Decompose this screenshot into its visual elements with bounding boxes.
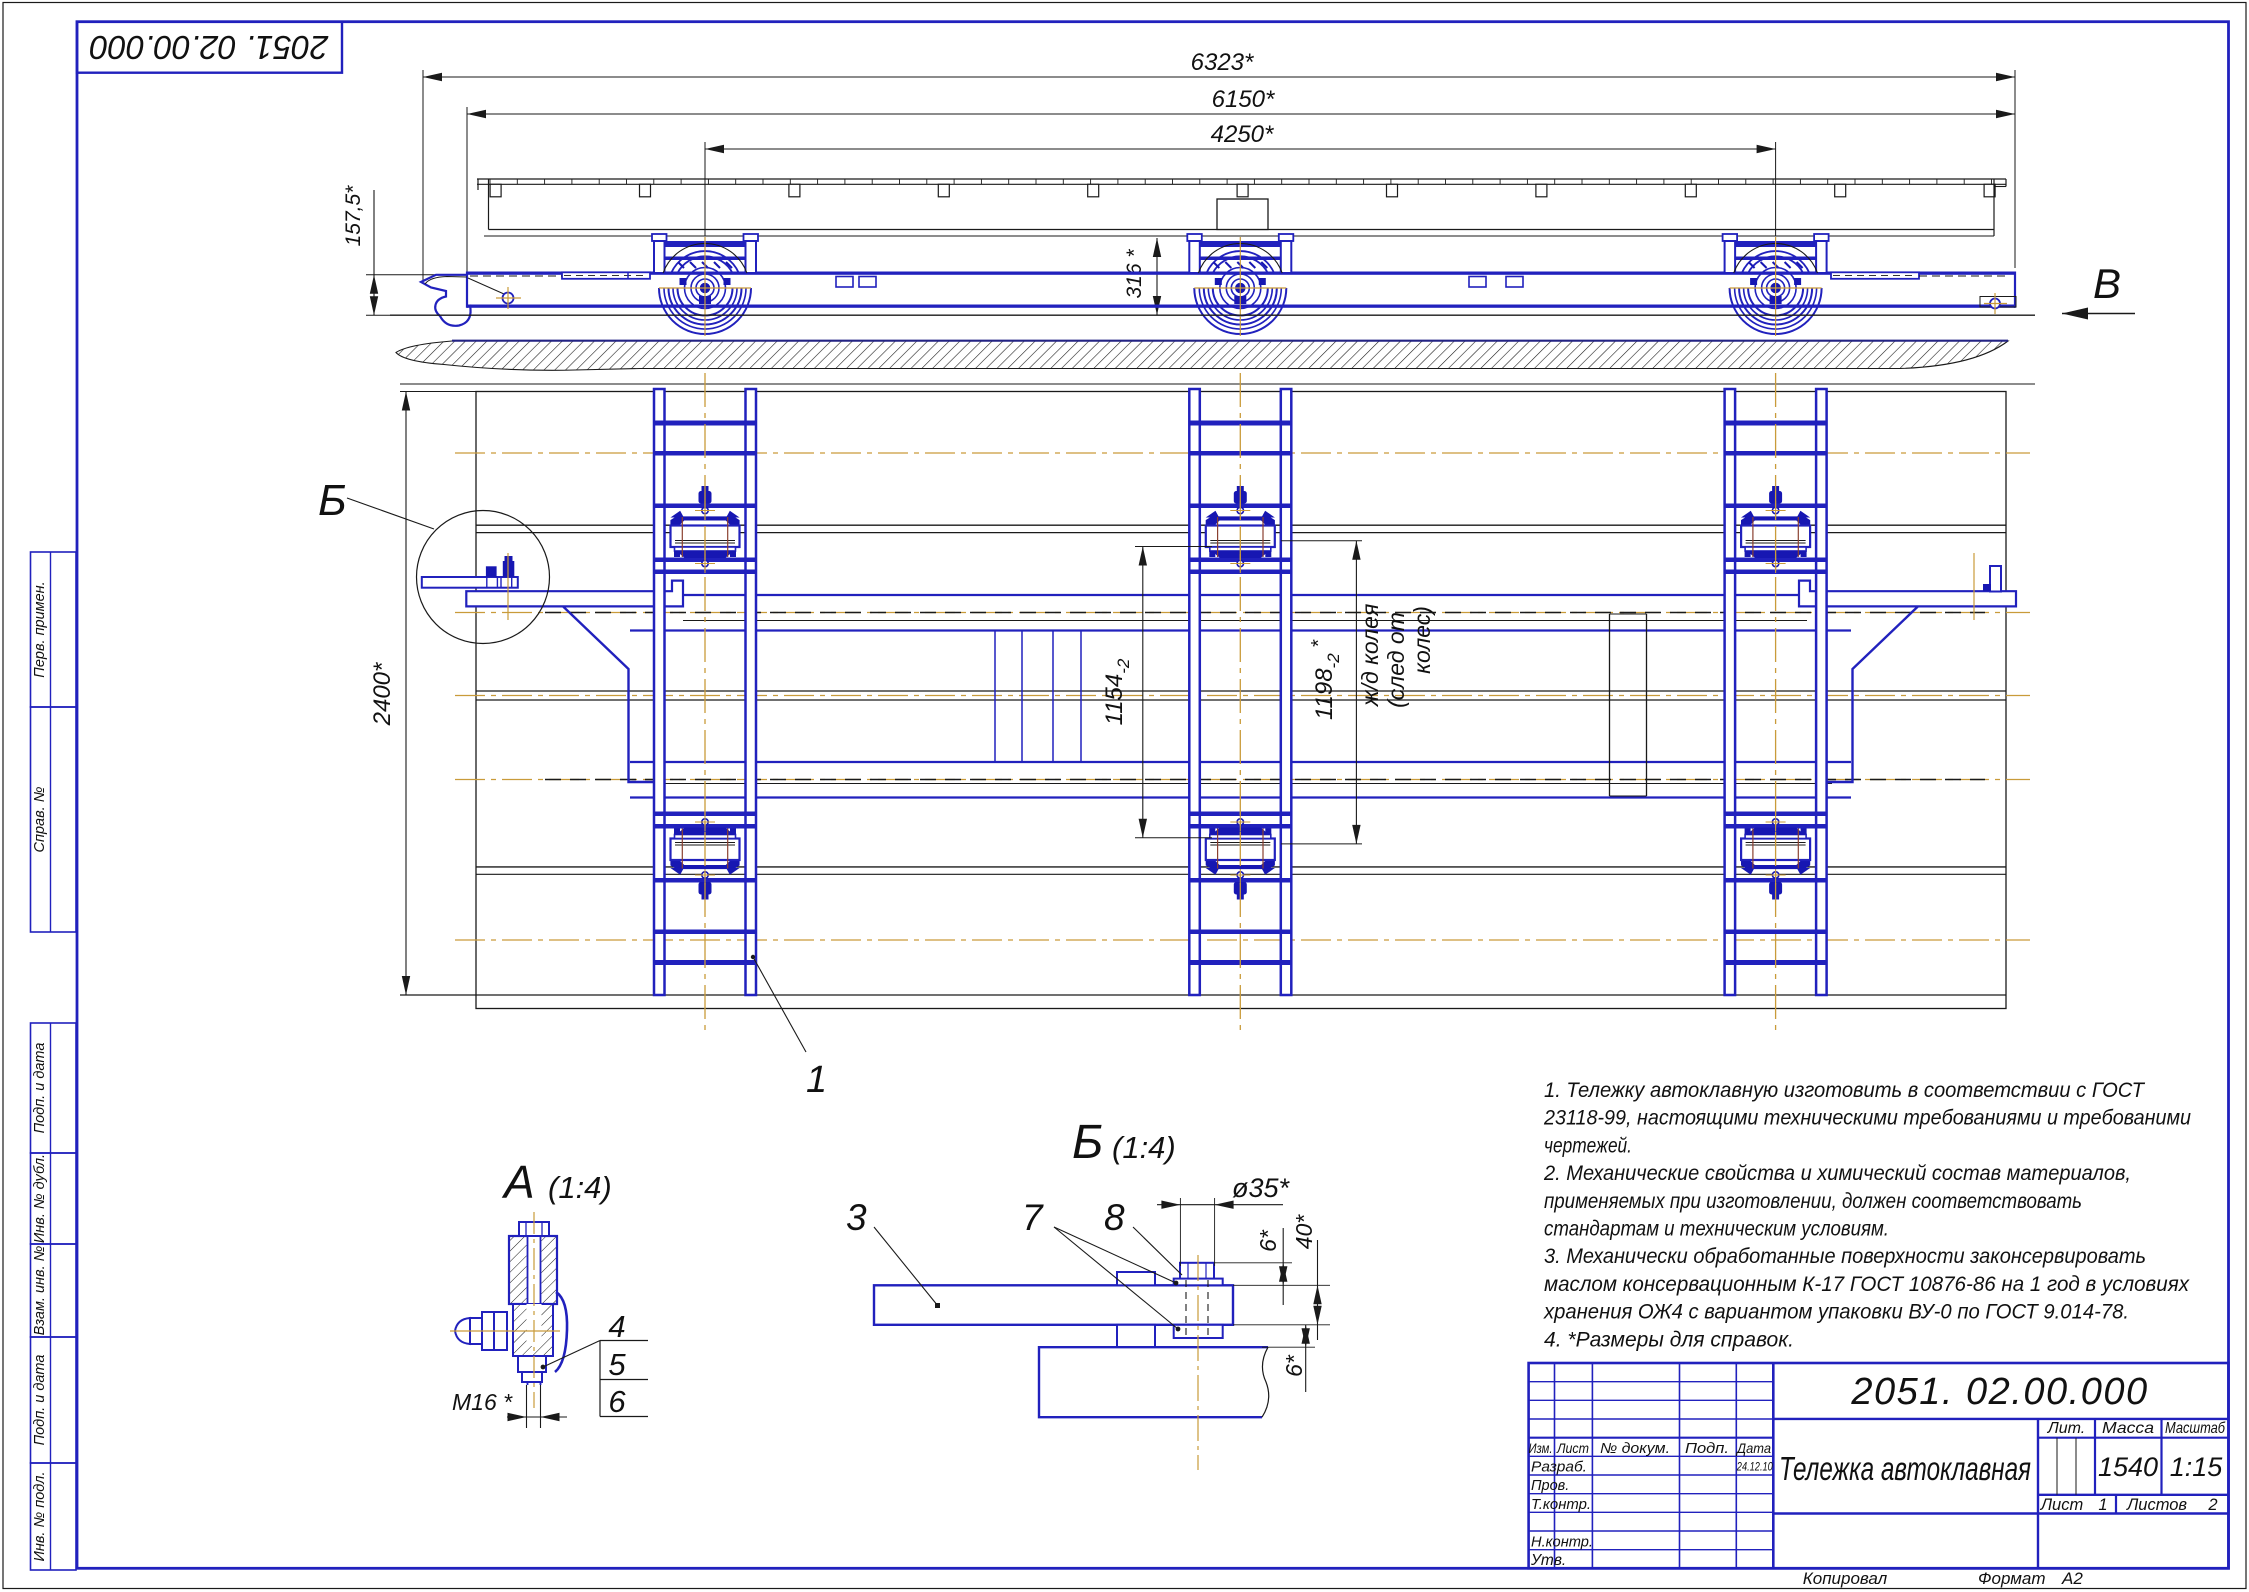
svg-text:Справ. №: Справ. № [32,786,48,852]
svg-text:Б: Б [318,476,347,525]
svg-text:4: 4 [608,1309,625,1344]
svg-text:ж/д колея: ж/д колея [1357,604,1383,708]
svg-text:6150*: 6150* [1212,86,1275,113]
svg-text:Тележка автоклавная: Тележка автоклавная [1779,1450,2031,1487]
svg-text:Лит.: Лит. [2047,1420,2085,1437]
svg-text:2. Механические свойства и хи: 2. Механические свойства и химический со… [1543,1161,2131,1185]
svg-text:(1:4): (1:4) [1112,1130,1176,1165]
svg-text:7: 7 [1022,1197,1044,1238]
svg-text:Инв. № дубл.: Инв. № дубл. [32,1154,48,1243]
svg-text:колес): колес) [1409,606,1435,674]
svg-text:23118-99, настоящими техническ: 23118-99, настоящими техническими требов… [1543,1106,2191,1130]
svg-text:Дата: Дата [1735,1440,1771,1456]
svg-text:24.12.10: 24.12.10 [1736,1462,1773,1474]
svg-text:2400*: 2400* [369,662,396,726]
svg-text:6: 6 [608,1384,626,1419]
svg-text:Подп. и дата: Подп. и дата [32,1355,48,1446]
svg-text:3: 3 [846,1197,867,1238]
svg-text:2: 2 [2207,1496,2217,1514]
svg-text:Взам. инв. №: Взам. инв. № [32,1245,48,1335]
svg-text:4. *Размеры для справок.: 4. *Размеры для справок. [1544,1327,1794,1351]
svg-text:Лист: Лист [1556,1441,1589,1456]
svg-text:1:15: 1:15 [2170,1452,2224,1482]
svg-text:Масса: Масса [2102,1420,2154,1437]
svg-text:3. Механически обработанные п: 3. Механически обработанные поверхности … [1544,1244,2146,1268]
svg-text:Масштаб: Масштаб [2165,1420,2226,1437]
svg-text:(след от: (след от [1383,612,1409,708]
svg-text:применяемых при изготовлении,: применяемых при изготовлении, должен соо… [1544,1189,2082,1213]
svg-text:1: 1 [2098,1496,2107,1514]
svg-text:Формат: Формат [1978,1569,2046,1588]
svg-text:стандартам и техническим услов: стандартам и техническим условиям. [1544,1217,1889,1241]
svg-text:Изм.: Изм. [1529,1441,1553,1456]
svg-text:1540: 1540 [2098,1452,2158,1482]
svg-text:6*: 6* [1255,1229,1281,1252]
svg-text:М16 *: М16 * [452,1389,513,1415]
svg-text:А2: А2 [2061,1569,2083,1588]
svg-text:1: 1 [806,1059,827,1101]
svg-text:Подп.: Подп. [1685,1441,1729,1457]
svg-text:А: А [501,1156,535,1208]
svg-text:4250*: 4250* [1211,121,1274,148]
svg-text:2051. 02.00.000: 2051. 02.00.000 [1850,1371,2148,1413]
svg-text:1. Тележку автоклавную изгото: 1. Тележку автоклавную изготовить в соот… [1544,1078,2146,1102]
svg-text:157,5*: 157,5* [342,185,365,247]
svg-text:5: 5 [608,1347,626,1382]
svg-text:Утв.: Утв. [1530,1552,1566,1569]
svg-text:В: В [2093,260,2121,307]
svg-text:Н.контр.: Н.контр. [1531,1535,1593,1551]
svg-text:маслом консервационным К-17 ГО: маслом консервационным К-17 ГОСТ 10876-8… [1544,1272,2190,1296]
svg-text:Т.контр.: Т.контр. [1531,1497,1591,1513]
svg-text:Разраб.: Разраб. [1531,1460,1587,1476]
svg-text:№ докум.: № докум. [1600,1441,1670,1457]
svg-text:40*: 40* [1291,1214,1317,1250]
svg-text:(1:4): (1:4) [548,1170,612,1205]
svg-text:Б: Б [1072,1116,1103,1169]
svg-text:Пров.: Пров. [1531,1478,1569,1494]
svg-text:ø35*: ø35* [1232,1173,1291,1203]
svg-text:Инв. № подл.: Инв. № подл. [32,1472,48,1562]
svg-text:6323*: 6323* [1191,49,1254,76]
svg-text:Перв. примен.: Перв. примен. [32,581,48,677]
svg-text:чертежей.: чертежей. [1544,1133,1632,1157]
svg-text:Листов: Листов [2126,1496,2187,1514]
svg-text:2051. 02.00.000: 2051. 02.00.000 [89,29,329,66]
svg-text:6*: 6* [1281,1354,1307,1377]
svg-text:Подп. и дата: Подп. и дата [32,1043,48,1134]
svg-text:8: 8 [1104,1197,1125,1238]
svg-text:Лист: Лист [2040,1496,2083,1514]
svg-text:Копировал: Копировал [1803,1569,1888,1588]
svg-text:хранения ОЖ4 с вариантом упако: хранения ОЖ4 с вариантом упаковки ВУ-0 п… [1543,1300,2129,1324]
